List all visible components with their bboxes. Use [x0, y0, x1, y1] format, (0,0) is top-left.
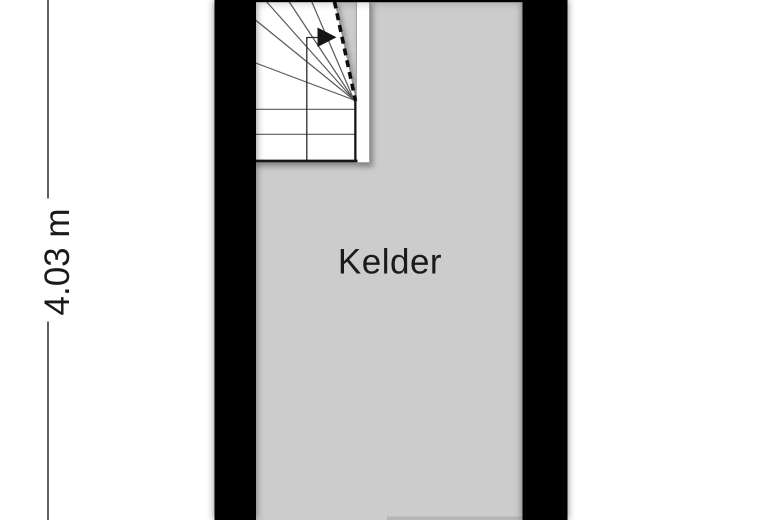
top-wall-edge [215, 0, 568, 2]
dimension-label: 4.03 m [38, 209, 77, 316]
dimension: 4.03 m [38, 0, 77, 520]
room-label: Kelder [338, 243, 442, 282]
right-wall [523, 0, 568, 520]
floorplan-canvas: Kelder 4.03 m [0, 0, 780, 520]
left-wall [215, 0, 257, 520]
basement-floorplan: Kelder 4.03 m [0, 0, 780, 520]
bottom-wall-fragment [387, 517, 523, 520]
stair-landing-strip [357, 0, 370, 163]
